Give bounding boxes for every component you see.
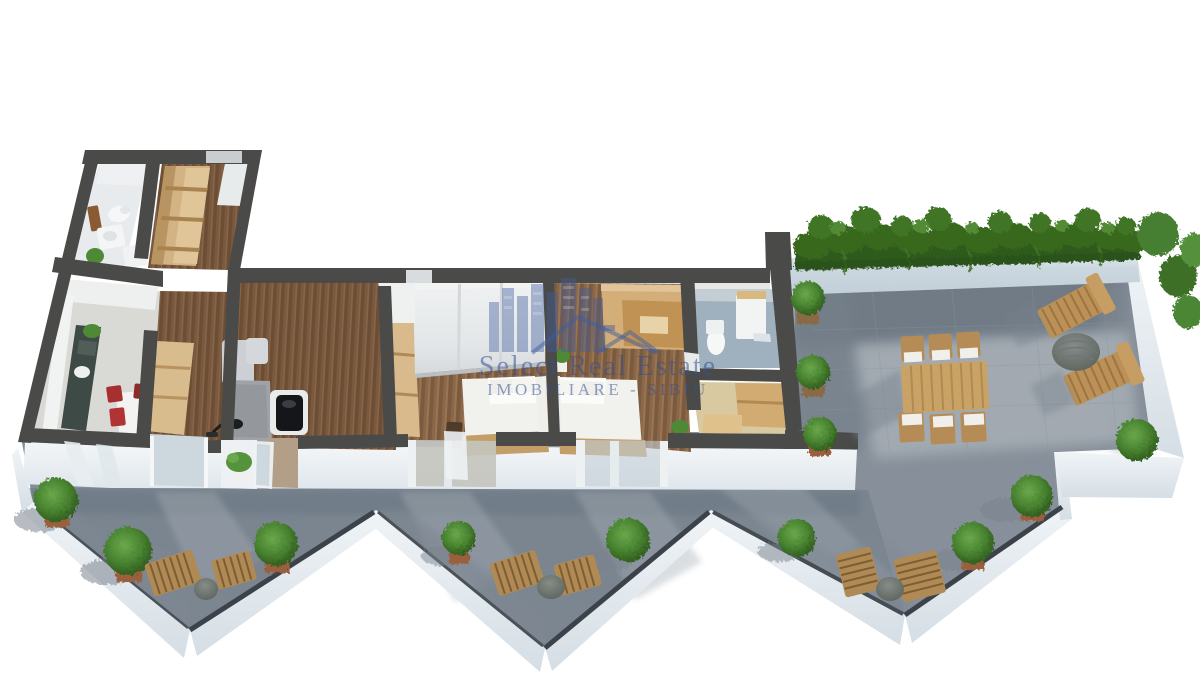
svg-text:Select Real Estate: Select Real Estate [479,351,717,382]
svg-text:IMOBILIARE - SIBIU: IMOBILIARE - SIBIU [487,380,709,399]
